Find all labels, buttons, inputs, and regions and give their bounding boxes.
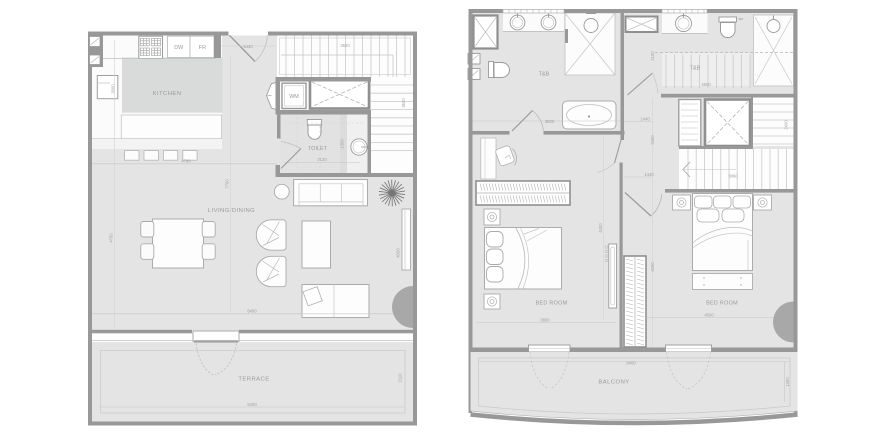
svg-text:1300: 1300 [340, 139, 345, 149]
svg-text:1450: 1450 [785, 377, 790, 387]
svg-text:3600: 3600 [401, 98, 406, 108]
svg-text:1440: 1440 [644, 172, 654, 177]
svg-text:4000: 4000 [396, 248, 401, 258]
svg-text:KITCHEN: KITCHEN [152, 91, 181, 97]
svg-text:3060: 3060 [728, 174, 738, 179]
svg-text:LIVING/DINING: LIVING/DINING [208, 208, 255, 214]
svg-text:3800: 3800 [540, 317, 550, 322]
svg-text:FR: FR [199, 45, 206, 51]
svg-text:BALCONY: BALCONY [598, 380, 629, 386]
svg-text:2400: 2400 [650, 135, 655, 145]
svg-text:8400: 8400 [247, 402, 257, 407]
svg-text:T&B: T&B [690, 66, 701, 72]
svg-text:2120: 2120 [317, 157, 327, 162]
svg-text:2400: 2400 [784, 120, 789, 130]
svg-text:7700: 7700 [224, 179, 229, 189]
svg-text:4400: 4400 [598, 223, 603, 233]
svg-text:1440: 1440 [640, 116, 650, 121]
svg-text:4500: 4500 [701, 82, 711, 87]
svg-text:DW: DW [174, 45, 184, 51]
svg-text:2100: 2100 [650, 51, 655, 61]
svg-text:5430: 5430 [243, 44, 253, 49]
svg-text:8400: 8400 [247, 308, 257, 313]
svg-text:4700: 4700 [108, 233, 113, 243]
svg-text:3620: 3620 [340, 43, 350, 48]
svg-text:BED ROOM: BED ROOM [706, 301, 738, 307]
svg-text:4780: 4780 [181, 159, 191, 164]
svg-text:3800: 3800 [545, 119, 555, 124]
svg-text:4500: 4500 [704, 312, 714, 317]
svg-text:BED ROOM: BED ROOM [536, 301, 568, 307]
svg-text:T&B: T&B [539, 72, 550, 78]
svg-text:TOILET: TOILET [308, 146, 327, 152]
svg-text:8400: 8400 [626, 361, 636, 366]
svg-text:TERRACE: TERRACE [238, 377, 269, 383]
svg-text:WM: WM [289, 94, 299, 100]
svg-text:4000: 4000 [650, 262, 655, 272]
svg-text:2110: 2110 [398, 373, 403, 383]
